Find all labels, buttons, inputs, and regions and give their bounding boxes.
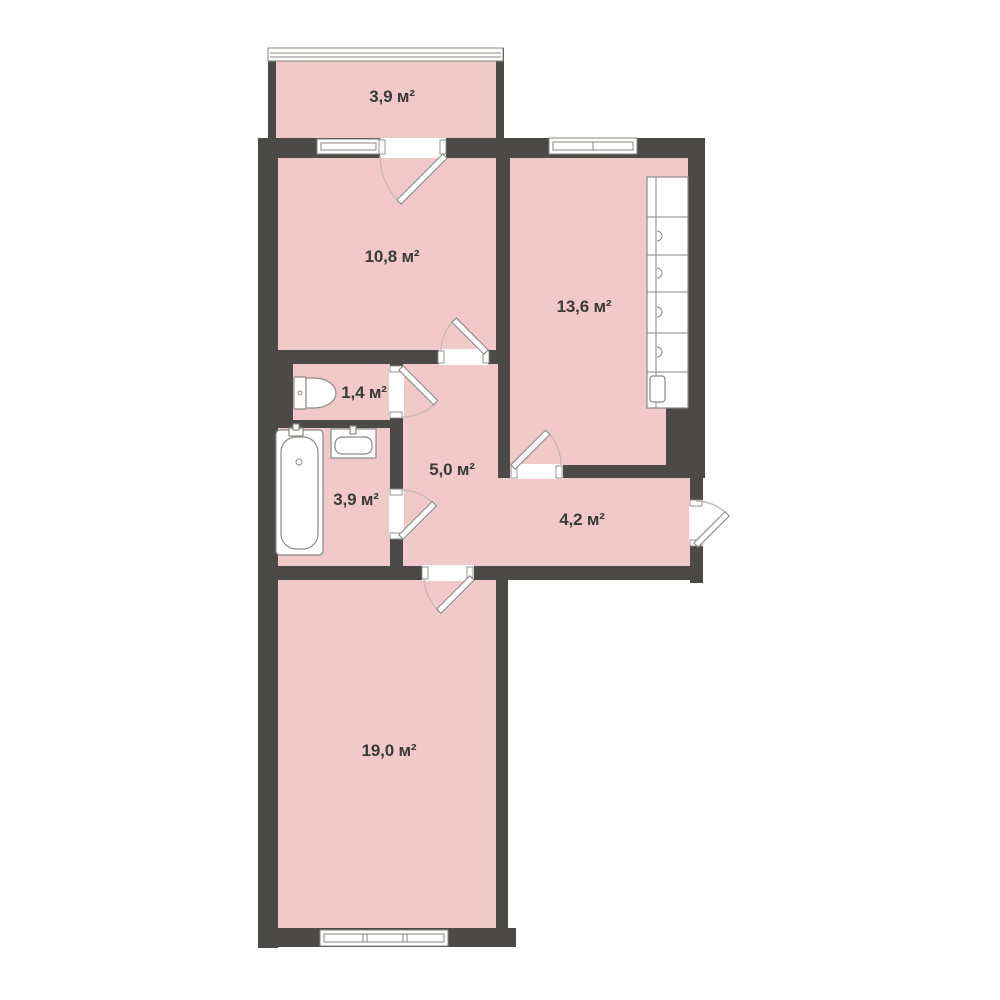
floor-plan: 3,9 м² 10,8 м² 13,6 м² 1,4 м² 5,0 м² 3,9… (0, 0, 1000, 1000)
label-hallway-area: 5,0 м² (429, 460, 474, 480)
floor-plan-drawing (0, 0, 1000, 1000)
kitchen-counter (647, 177, 688, 408)
label-corridor-area: 4,2 м² (559, 510, 604, 530)
label-balcony-area: 3,9 м² (369, 87, 414, 107)
bathtub (276, 424, 323, 555)
wall-right-shaft (666, 408, 703, 478)
kitchen-sink (650, 376, 665, 402)
label-living-room-area: 19,0 м² (362, 741, 417, 761)
label-kitchen-area: 13,6 м² (557, 297, 612, 317)
label-bathroom-area: 3,9 м² (333, 490, 378, 510)
wall-balcony-left (268, 48, 276, 140)
wall-wc-hallway-top (390, 350, 403, 367)
label-wc-area: 1,4 м² (341, 383, 386, 403)
wall-bathroom-hallway-bottom (390, 538, 403, 566)
bathroom-sink (331, 426, 376, 458)
wall-bedroom-bottom-right (487, 350, 510, 364)
wall-wc-hallway-mid (390, 417, 403, 490)
label-bedroom-area: 10,8 м² (365, 247, 420, 267)
wall-bedroom-bottom-left (278, 350, 440, 364)
wall-bedroom-kitchen (496, 138, 510, 364)
window-living-room (320, 930, 448, 946)
window-balcony-glazing (268, 48, 503, 61)
wall-wc-shaft (278, 350, 293, 428)
window-kitchen (549, 138, 637, 154)
floor-corridor (403, 478, 690, 566)
wall-balcony-right (496, 48, 504, 140)
door-entry (689, 500, 729, 547)
wall-corridor-bottom-right (473, 566, 703, 580)
wall-entry-above (690, 478, 703, 500)
wall-left-exterior (258, 138, 278, 948)
toilet (294, 377, 336, 409)
wall-hallway-kitchen (498, 364, 510, 478)
wall-corridor-bottom-left (258, 566, 423, 580)
wall-living-right (496, 566, 508, 947)
